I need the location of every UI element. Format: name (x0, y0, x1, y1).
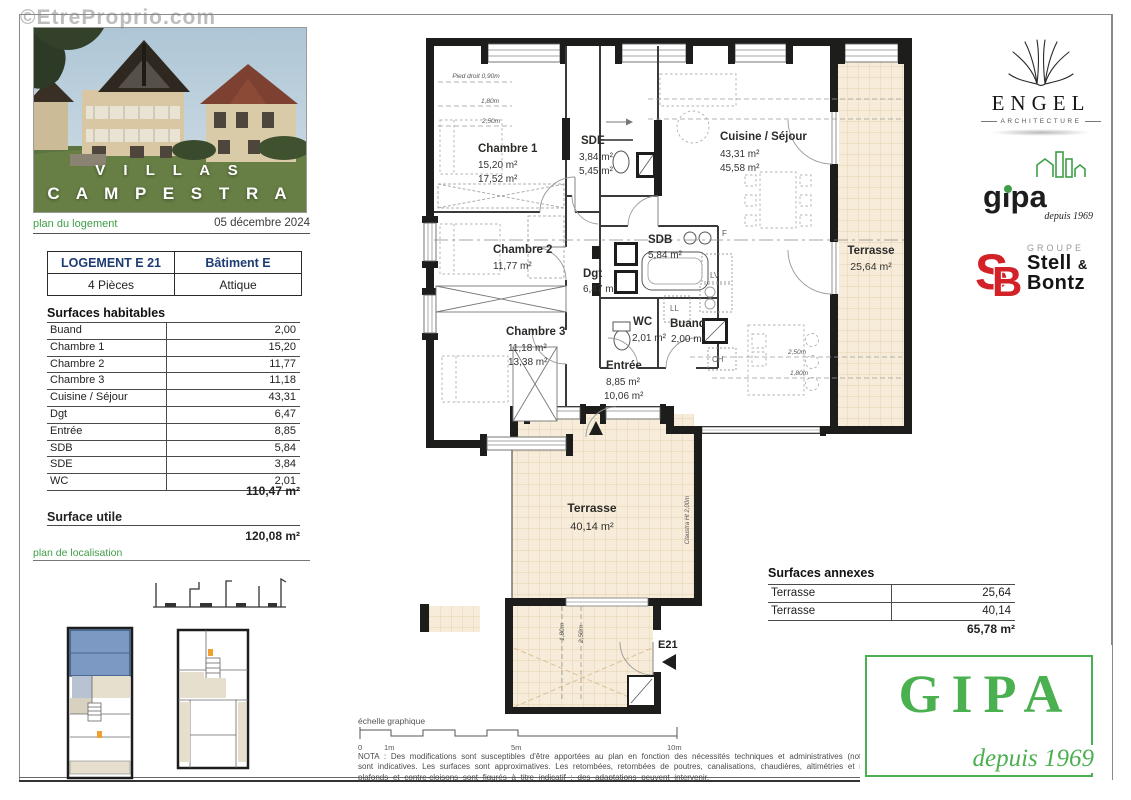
date-label: 05 décembre 2024 (160, 217, 310, 229)
room-area: 2,01 m² (632, 333, 667, 344)
dim-label: 2,50m (787, 349, 807, 356)
unit-rooms: 4 Pièces (48, 274, 175, 295)
row-value: 6,47 (167, 407, 300, 423)
scale-tick: 10m (667, 743, 682, 752)
row-label: SDE (47, 457, 167, 473)
building-elevation-sketch (153, 579, 286, 607)
unit-table: LOGEMENT E 21 Bâtiment E 4 Pièces Attiqu… (47, 251, 302, 296)
scale-label: échelle graphique (358, 716, 425, 726)
room-area: 11,77 m² (493, 261, 532, 272)
unit-marker-dot (97, 731, 102, 738)
surfaces-habitables-title: Surfaces habitables (47, 306, 165, 320)
row-label: Buand (47, 323, 167, 339)
storage-hatches (436, 184, 566, 421)
engel-shadow (991, 129, 1091, 136)
row-value: 3,84 (167, 457, 300, 473)
table-row: Chambre 115,20 (47, 340, 300, 357)
gipa-large-depuis: depuis 1969 (966, 745, 1100, 773)
header-rule (33, 233, 310, 234)
row-label: Chambre 3 (47, 373, 167, 389)
dim-label: 1,80m (481, 98, 500, 105)
table-row: Chambre 311,18 (47, 373, 300, 390)
stell-line: Stell & (1027, 254, 1088, 274)
row-value: 15,20 (167, 340, 300, 356)
room-label: Dgt (583, 268, 602, 280)
room-area: 5,84 m² (648, 250, 683, 261)
room-label: Chambre 2 (493, 244, 552, 256)
room-area: 3,84 m² (579, 152, 614, 163)
unit-building: Bâtiment E (175, 252, 301, 274)
room-area: 25,64 m² (850, 261, 892, 273)
room-label: Cuisine / Séjour (720, 131, 807, 143)
dim-label: 2,50m (578, 624, 585, 644)
gipa-large-wordmark: GIPA (860, 663, 1112, 725)
table-row: Terrasse40,14 (768, 603, 1015, 621)
room-label: SDE (581, 135, 605, 147)
unit-marker-dot (208, 649, 213, 656)
page-border-left (19, 14, 20, 780)
gipa-logo-small: gipa depuis 1969 (983, 150, 1093, 222)
scale-tick: 5m (511, 743, 521, 752)
ampersand: & (1078, 257, 1088, 272)
row-label: Terrasse (768, 585, 892, 602)
rule-left (981, 121, 997, 122)
photo-title-line2: C A M P E S T R A (34, 184, 306, 204)
room-area: 15,20 m² (478, 160, 518, 171)
gipa-green-dot-icon (1004, 185, 1012, 193)
gipa-logo-large: GIPA depuis 1969 (860, 645, 1112, 795)
room-area: 8,85 m² (606, 377, 641, 388)
row-label: Entrée (47, 424, 167, 440)
neighbor-terrace-fragment (420, 604, 480, 632)
scale-tick: 1m (384, 743, 394, 752)
bontz-line: Bontz (1027, 274, 1088, 293)
scale-tick: 0 (358, 743, 362, 752)
dim-label: 1,80m (559, 622, 566, 641)
row-label: SDB (47, 441, 167, 457)
row-value: 43,31 (167, 390, 300, 406)
watermark: ©EtreProprio.com (20, 6, 216, 30)
claustra-label: Claustra Ht 2,00m (685, 496, 691, 544)
interior-partitions (434, 46, 718, 406)
room-label: WC (633, 316, 652, 328)
row-value: 40,14 (892, 603, 1015, 620)
localisation-mini-plans (40, 565, 300, 795)
table-row: SDB5,84 (47, 441, 300, 458)
row-value: 11,77 (167, 357, 300, 373)
dim-label: Pied droit 0,90m (452, 73, 500, 80)
room-label: Terrasse (567, 501, 616, 515)
stell-word: Stell (1027, 252, 1072, 274)
row-label: Chambre 2 (47, 357, 167, 373)
surface-utile-value: 120,08 m² (47, 529, 300, 543)
room-area: 6,47 m² (583, 284, 618, 295)
room-area: 2,00 m² (671, 334, 706, 345)
gipa-word-text: gipa (983, 179, 1047, 214)
engel-subtitle: ARCHITECTURE (975, 118, 1107, 125)
row-value: 8,85 (167, 424, 300, 440)
surfaces-annexes-total: 65,78 m² (768, 622, 1015, 636)
table-row: Buand2,00 (47, 323, 300, 340)
attic-arrow (606, 119, 633, 126)
room-area: 43,31 m² (720, 149, 760, 160)
room-area: 40,14 m² (570, 521, 614, 533)
room-label: Chambre 3 (506, 326, 565, 338)
room-area: 13,38 m² (508, 357, 548, 368)
row-value: 2,00 (167, 323, 300, 339)
unit-table-header-row: LOGEMENT E 21 Bâtiment E (48, 252, 301, 274)
room-area: 11,18 m² (508, 343, 547, 354)
localisation-rule (33, 560, 310, 561)
row-label: Terrasse (768, 603, 892, 620)
room-label: SDB (648, 234, 672, 246)
unit-level: Attique (175, 274, 301, 295)
photo-title-line1: V I L L A S (34, 162, 306, 179)
mini-plan-building-adjacent (178, 630, 248, 768)
engel-subtitle-text: ARCHITECTURE (1001, 118, 1082, 125)
room-area: 17,52 m² (478, 174, 518, 185)
engel-hands-icon (999, 30, 1083, 88)
row-label: Cuisine / Séjour (47, 390, 167, 406)
surfaces-habitables-table: Buand2,00 Chambre 115,20 Chambre 211,77 … (47, 322, 300, 491)
room-label: Entrée (606, 360, 642, 372)
room-label: Terrasse (847, 245, 894, 257)
surface-utile-title: Surface utile (47, 510, 122, 524)
engel-name: ENGEL (975, 91, 1107, 116)
row-label: Dgt (47, 407, 167, 423)
stell-bontz-monogram-icon: S B (975, 243, 1023, 303)
unit-name: LOGEMENT E 21 (48, 252, 175, 274)
unit-tag: E21 (658, 639, 678, 651)
terrace-east (838, 46, 904, 426)
surfaces-annexes-title: Surfaces annexes (768, 566, 874, 580)
lv-label: LV (710, 271, 720, 280)
plan-du-logement-label: plan du logement (33, 218, 117, 230)
room-label: Buand (670, 318, 706, 330)
ll-label: LL (670, 304, 679, 313)
rule-right (1085, 121, 1101, 122)
engel-logo: ENGEL ARCHITECTURE (975, 30, 1107, 136)
svg-text:B: B (992, 258, 1022, 303)
dim-label: 2,50m (481, 118, 501, 125)
room-label: Chambre 1 (478, 143, 538, 155)
unit-entry-arrow-icon (662, 654, 676, 670)
table-row: SDE3,84 (47, 457, 300, 474)
table-row: Terrasse25,64 (768, 585, 1015, 603)
surface-utile-rule (47, 525, 300, 526)
table-row: Chambre 211,77 (47, 357, 300, 374)
gipa-buildings-icon (1035, 150, 1087, 178)
ch-label: CH (712, 355, 724, 364)
table-row: Entrée8,85 (47, 424, 300, 441)
unit-table-value-row: 4 Pièces Attique (48, 274, 301, 295)
project-photo: V I L L A S C A M P E S T R A (33, 27, 307, 213)
terrace-glass-screen (566, 598, 648, 606)
plan-sheet: ©EtreProprio.com (0, 0, 1131, 800)
lower-terrace-shower (628, 676, 655, 706)
table-row: Cuisine / Séjour43,31 (47, 390, 300, 407)
room-area: 5,45 m² (579, 166, 614, 177)
room-area: 10,06 m² (604, 391, 644, 402)
row-label: Chambre 1 (47, 340, 167, 356)
room-area: 45,58 m² (720, 163, 760, 174)
surfaces-annexes-table: Terrasse25,64 Terrasse40,14 (768, 584, 1015, 621)
row-value: 5,84 (167, 441, 300, 457)
mini-plan-building-e (68, 628, 132, 778)
table-row: Dgt6,47 (47, 407, 300, 424)
gipa-wordmark: gipa (983, 183, 1093, 211)
surfaces-habitables-total: 110,47 m² (47, 484, 302, 498)
stell-bontz-logo: S B GROUPE Stell & Bontz (975, 243, 1115, 303)
dim-label: 1,80m (790, 370, 809, 377)
ridge-label: F (722, 229, 727, 238)
plan-de-localisation-label: plan de localisation (33, 547, 122, 559)
row-value: 25,64 (892, 585, 1015, 602)
row-value: 11,18 (167, 373, 300, 389)
